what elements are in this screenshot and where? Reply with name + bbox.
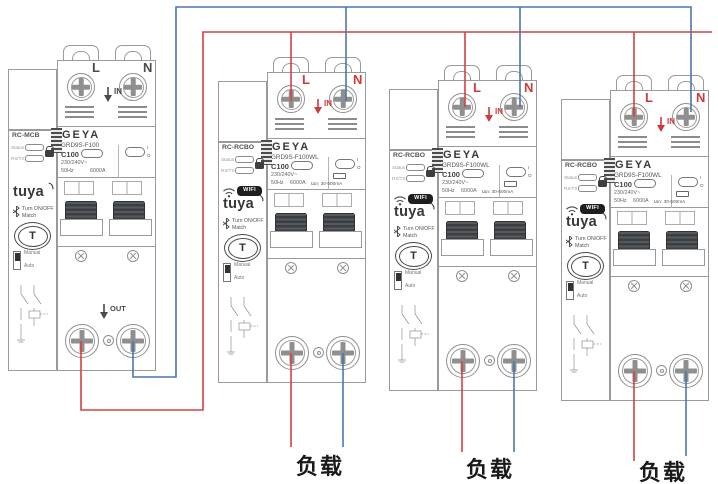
din-clip (444, 65, 480, 81)
bluetooth-icon (13, 206, 20, 217)
rating-pill (634, 179, 656, 188)
match-label-2: Match (403, 233, 417, 239)
device-type-label: RC-RCBO (222, 144, 254, 151)
status-led (235, 156, 254, 163)
rxtx-led (25, 155, 44, 162)
leakage-rating: IΔn: 30-500mA (482, 189, 513, 194)
manual-label: Manual (24, 250, 40, 256)
voltage-rating: 230/240V~ (442, 180, 468, 186)
frequency-rating: 50Hz (614, 198, 627, 204)
breaker-device-4: L N IN GEYA GRD9S-F100WL C100 I O 230/24… (561, 75, 711, 401)
terminal-label-l: L (92, 60, 100, 75)
screw-cross-icon (278, 86, 304, 112)
breaker-handle (666, 231, 698, 251)
breaker-handle (275, 213, 307, 233)
model-number: GRD9S-F100WL (614, 172, 662, 179)
lock-icon (255, 162, 264, 169)
down-arrow-icon (485, 107, 493, 122)
slider-knob (396, 273, 401, 281)
match-label-1: Turn ON/OFF (403, 226, 435, 232)
power-indicator (506, 167, 526, 177)
fixing-screw (628, 280, 640, 292)
screw-cross-icon (120, 74, 146, 100)
pole-base (270, 231, 313, 248)
on-mark: I (528, 165, 529, 170)
screw-cross-icon (449, 94, 475, 120)
load-label-1: 负载 (296, 449, 344, 481)
terminal-screw-n-out (116, 324, 150, 358)
power-indicator (678, 177, 698, 187)
pole-cap (274, 193, 304, 207)
frequency-rating: 50Hz (271, 180, 284, 186)
terminal-screw-n-in (329, 85, 357, 113)
pole-base (662, 249, 705, 266)
in-direction: IN (314, 99, 332, 114)
rxtx-led (235, 167, 254, 174)
pole-base (109, 219, 152, 236)
status-led (25, 144, 44, 151)
in-label: IN (667, 117, 675, 126)
off-mark: O (528, 173, 532, 178)
rxtx-led (406, 175, 425, 182)
out-label: OUT (110, 304, 126, 313)
vent-slots (671, 136, 700, 151)
screw-cross-icon (447, 345, 479, 377)
fixing-screw (456, 270, 468, 282)
manual-label: Manual (577, 280, 593, 286)
test-port (484, 355, 495, 366)
current-rating: C100 (61, 150, 79, 159)
tuya-logo: tuya (13, 184, 44, 200)
terminal-screw-n-in (500, 93, 528, 121)
in-direction: IN (657, 117, 675, 132)
terminal-label-n: N (353, 72, 362, 87)
match-label-1: Turn ON/OFF (575, 236, 607, 242)
tuya-logo: tuya (566, 214, 597, 230)
t-button-label: T (410, 250, 417, 262)
screw-cross-icon (276, 337, 308, 369)
t-button-label: T (239, 242, 246, 254)
status-led (406, 164, 425, 171)
vent-slots (328, 118, 357, 133)
frequency-rating: 50Hz (442, 188, 455, 194)
din-clip (616, 75, 652, 91)
breaking-capacity: 6000A (461, 188, 477, 194)
leakage-rating: IΔn: 30-500mA (654, 199, 685, 204)
din-clip (273, 57, 309, 73)
on-mark: I (357, 157, 358, 162)
fixing-screw (75, 250, 87, 262)
breaker-handle (323, 213, 355, 233)
match-label-2: Match (22, 213, 36, 219)
pole-cap (665, 211, 695, 225)
terminal-screw-n-out (497, 344, 531, 378)
vent-slots (499, 126, 528, 141)
pole-cap (617, 211, 647, 225)
down-arrow-icon (100, 304, 108, 319)
model-number: GRD9S-F100WL (442, 162, 490, 169)
frequency-rating: 50Hz (61, 168, 74, 174)
manual-label: Manual (234, 262, 250, 268)
fixing-screw (337, 262, 349, 274)
terminal-label-l: L (645, 90, 653, 105)
down-arrow-icon (657, 117, 665, 132)
terminal-screw-l-out (618, 354, 652, 388)
power-indicator (335, 159, 355, 169)
current-rating: C100 (614, 180, 632, 189)
in-label: IN (324, 99, 332, 108)
manual-auto-slider (13, 251, 21, 270)
vent-slots (275, 118, 304, 133)
voltage-rating: 230/240V~ (61, 160, 87, 166)
down-arrow-icon (314, 99, 322, 114)
in-label: IN (114, 87, 122, 96)
terminal-screw-l-in (448, 93, 476, 121)
status-led-label: Status (564, 175, 577, 180)
circuit-diagram (12, 282, 52, 344)
status-led-label: Status (11, 145, 24, 150)
terminal-screw-l-out (275, 336, 309, 370)
breaker-handle (618, 231, 650, 251)
tuya-logo: tuya (394, 204, 425, 220)
rxtx-led-label: RX/TX (221, 168, 235, 173)
auto-label: Auto (24, 263, 34, 269)
slider-knob (568, 283, 573, 291)
terminal-label-n: N (143, 60, 152, 75)
fixing-screw (680, 280, 692, 292)
manual-auto-slider (394, 271, 402, 290)
terminal-screw-n-in (119, 73, 147, 101)
leakage-icon (333, 173, 346, 179)
screw-cross-icon (619, 355, 651, 387)
circuit-diagram (222, 294, 262, 356)
bluetooth-icon (223, 218, 230, 229)
terminal-screw-n-out (669, 354, 703, 388)
section-divider (438, 266, 537, 267)
lock-icon (598, 180, 607, 187)
t-button-label: T (29, 230, 36, 242)
pole-base (613, 249, 656, 266)
t-button: T (224, 234, 261, 262)
breaker-handle (65, 201, 97, 221)
circuit-diagram (565, 312, 605, 374)
vent-slots (65, 106, 94, 121)
slider-knob (15, 253, 20, 261)
in-direction: IN (485, 107, 503, 122)
leakage-icon (504, 181, 517, 187)
current-rating: C100 (442, 170, 460, 179)
breaker-handle (113, 201, 145, 221)
section-divider (610, 276, 709, 277)
screw-cross-icon (670, 355, 702, 387)
side-housing (561, 99, 610, 160)
screw-cross-icon (68, 74, 94, 100)
rxtx-led (578, 185, 597, 192)
device-type-label: RC-RCBO (393, 152, 425, 159)
current-rating: C100 (271, 162, 289, 171)
breaking-capacity: 6000A (633, 198, 649, 204)
pole-cap (64, 181, 94, 195)
on-mark: I (147, 145, 148, 150)
off-mark: O (147, 153, 151, 158)
fixing-screw (285, 262, 297, 274)
terminal-screw-n-in (672, 103, 700, 131)
vent-slots (618, 136, 647, 151)
pole-base (60, 219, 103, 236)
terminal-screw-l-in (620, 103, 648, 131)
terminal-screw-l-in (277, 85, 305, 113)
leakage-rating: IΔn: 30-500mA (311, 181, 342, 186)
auto-label: Auto (577, 293, 587, 299)
brand-logo: GEYA (62, 129, 100, 141)
screw-cross-icon (498, 345, 530, 377)
breaker-device-3: L N IN GEYA GRD9S-F100WL C100 I O 230/24… (389, 65, 539, 391)
fixing-screw (127, 250, 139, 262)
pole-cap (112, 181, 142, 195)
tuya-logo: tuya (223, 196, 254, 212)
breaker-device-2: L N IN GEYA GRD9S-F100WL C100 I O 230/24… (218, 57, 368, 383)
pole-cap (493, 201, 523, 215)
breaking-capacity: 6000A (90, 168, 106, 174)
terminal-label-n: N (524, 80, 533, 95)
circuit-diagram (393, 302, 433, 364)
power-indicator (125, 147, 145, 157)
pole-base (441, 239, 484, 256)
status-led-label: Status (221, 157, 234, 162)
down-arrow-icon (104, 87, 112, 102)
manual-auto-slider (566, 281, 574, 300)
breaker-handle (446, 221, 478, 241)
device-type-label: RC-MCB (12, 132, 40, 139)
screw-cross-icon (330, 86, 356, 112)
breaker-handle (494, 221, 526, 241)
terminal-label-n: N (696, 90, 705, 105)
pole-cap (445, 201, 475, 215)
brand-logo: GEYA (615, 159, 653, 171)
t-button: T (14, 222, 51, 250)
pole-base (319, 231, 362, 248)
vent-slots (118, 106, 147, 121)
status-led (578, 174, 597, 181)
slider-knob (225, 265, 230, 273)
din-clip (325, 57, 361, 73)
panel-divider (118, 145, 119, 178)
lock-icon (45, 150, 54, 157)
pole-cap (322, 193, 352, 207)
model-number: GRD9S-F100WL (271, 154, 319, 161)
in-label: IN (495, 107, 503, 116)
bluetooth-icon (566, 236, 573, 247)
rxtx-led-label: RX/TX (392, 176, 406, 181)
screw-cross-icon (327, 337, 359, 369)
terminal-label-l: L (302, 72, 310, 87)
section-divider (57, 246, 156, 247)
side-housing (8, 69, 57, 130)
manual-auto-slider (223, 263, 231, 282)
test-port (313, 347, 324, 358)
rating-pill (462, 169, 484, 178)
device-type-label: RC-RCBO (565, 162, 597, 169)
brand-logo: GEYA (272, 141, 310, 153)
bluetooth-icon (394, 226, 401, 237)
screw-cross-icon (66, 325, 98, 357)
match-label-2: Match (575, 243, 589, 249)
screw-cross-icon (117, 325, 149, 357)
pole-base (490, 239, 533, 256)
din-clip (115, 45, 151, 61)
auto-label: Auto (405, 283, 415, 289)
din-clip (63, 45, 99, 61)
voltage-rating: 230/240V~ (614, 190, 640, 196)
manual-label: Manual (405, 270, 421, 276)
lock-icon (426, 170, 435, 177)
rxtx-led-label: RX/TX (564, 186, 578, 191)
match-label-1: Turn ON/OFF (22, 206, 54, 212)
t-button: T (567, 252, 604, 280)
load-label-2: 负载 (466, 452, 514, 484)
test-port (656, 365, 667, 376)
t-button-label: T (582, 260, 589, 272)
screw-cross-icon (673, 104, 699, 130)
test-port (103, 335, 114, 346)
voltage-rating: 230/240V~ (271, 172, 297, 178)
side-housing (218, 81, 267, 142)
match-label-1: Turn ON/OFF (232, 218, 264, 224)
breaker-device-1: L N IN GEYA GRD9S-F100 C100 I O 230/240V… (8, 45, 158, 371)
breaking-capacity: 6000A (290, 180, 306, 186)
din-clip (496, 65, 532, 81)
din-clip (668, 75, 704, 91)
model-number: GRD9S-F100 (61, 142, 99, 149)
out-direction: OUT (100, 304, 126, 319)
screw-cross-icon (501, 94, 527, 120)
wiring-diagram: L N IN GEYA GRD9S-F100 C100 I O 230/240V… (0, 0, 718, 484)
match-label-2: Match (232, 225, 246, 231)
in-direction: IN (104, 87, 122, 102)
rxtx-led-label: RX/TX (11, 156, 25, 161)
leakage-icon (676, 191, 689, 197)
terminal-screw-l-in (67, 73, 95, 101)
auto-label: Auto (234, 275, 244, 281)
section-divider (267, 258, 366, 259)
load-label-3: 负载 (639, 455, 687, 484)
terminal-screw-l-out (446, 344, 480, 378)
rating-pill (291, 161, 313, 170)
screw-cross-icon (621, 104, 647, 130)
on-mark: I (700, 175, 701, 180)
rating-pill (81, 149, 103, 158)
terminal-label-l: L (473, 80, 481, 95)
status-led-label: Status (392, 165, 405, 170)
terminal-screw-l-out (65, 324, 99, 358)
terminal-screw-n-out (326, 336, 360, 370)
fixing-screw (508, 270, 520, 282)
t-button: T (395, 242, 432, 270)
vent-slots (446, 126, 475, 141)
off-mark: O (357, 165, 361, 170)
brand-logo: GEYA (443, 149, 481, 161)
side-housing (389, 89, 438, 150)
off-mark: O (700, 183, 704, 188)
